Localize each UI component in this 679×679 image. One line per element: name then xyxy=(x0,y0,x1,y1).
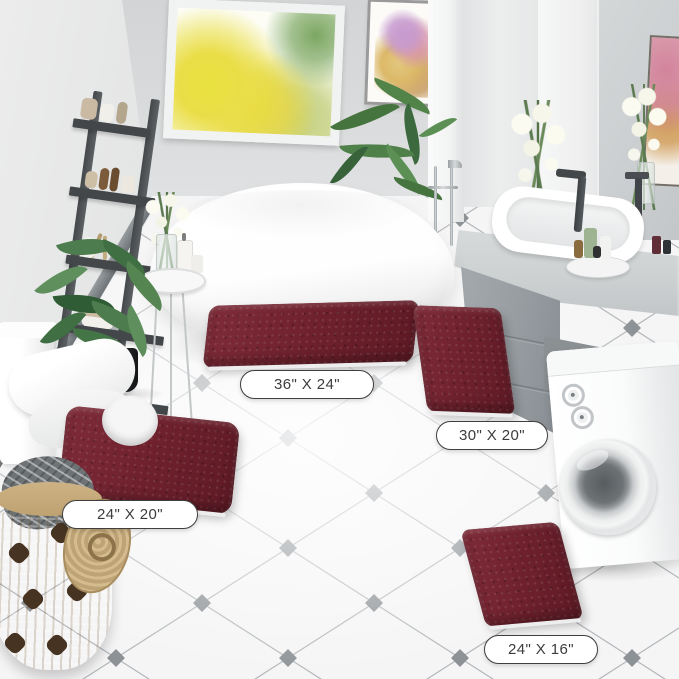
towel-roll xyxy=(80,97,99,120)
size-label-24x20: 24" X 20" xyxy=(62,500,198,529)
cosmetic-bottle xyxy=(663,240,671,254)
washing-machine xyxy=(546,340,679,569)
rug-30x20 xyxy=(413,305,516,415)
palm-leaf xyxy=(330,92,400,143)
cosmetic-bottle xyxy=(652,236,661,254)
basket-lid-handle xyxy=(85,530,119,564)
faucet-crossbar xyxy=(428,186,458,189)
bottle xyxy=(109,167,120,192)
bathroom-scene: 36" X 24" 30" X 20" 24" X 20" 24" X 16" xyxy=(0,0,679,679)
washer-door xyxy=(556,435,660,539)
basket-dot xyxy=(6,540,31,565)
ladder-shelf-board xyxy=(72,118,150,138)
washer-knob xyxy=(561,383,586,408)
palm-leaf xyxy=(419,111,457,144)
basket-dot xyxy=(44,632,69,657)
amber-bottle xyxy=(574,240,583,258)
size-label-24x16: 24" X 16" xyxy=(484,635,598,664)
bottle xyxy=(98,168,110,191)
towel-roll xyxy=(84,171,98,190)
towel-roll xyxy=(99,103,115,123)
basket-dot xyxy=(20,586,45,611)
lotion-bottle xyxy=(600,236,611,260)
size-label-36x24: 36" X 24" xyxy=(240,370,374,399)
size-label-30x20: 30" X 20" xyxy=(436,421,548,450)
faucet-pipe xyxy=(450,160,453,246)
plant-leaf xyxy=(96,239,152,277)
towel-roll xyxy=(115,101,128,124)
washer-knob xyxy=(570,405,595,430)
mirror-flowers-reflection xyxy=(613,84,675,210)
faucet-spout xyxy=(448,160,462,168)
rug-36x24 xyxy=(202,300,419,368)
small-jar xyxy=(593,246,601,258)
toiletry-tray xyxy=(566,256,630,278)
sink-basin xyxy=(504,195,632,254)
